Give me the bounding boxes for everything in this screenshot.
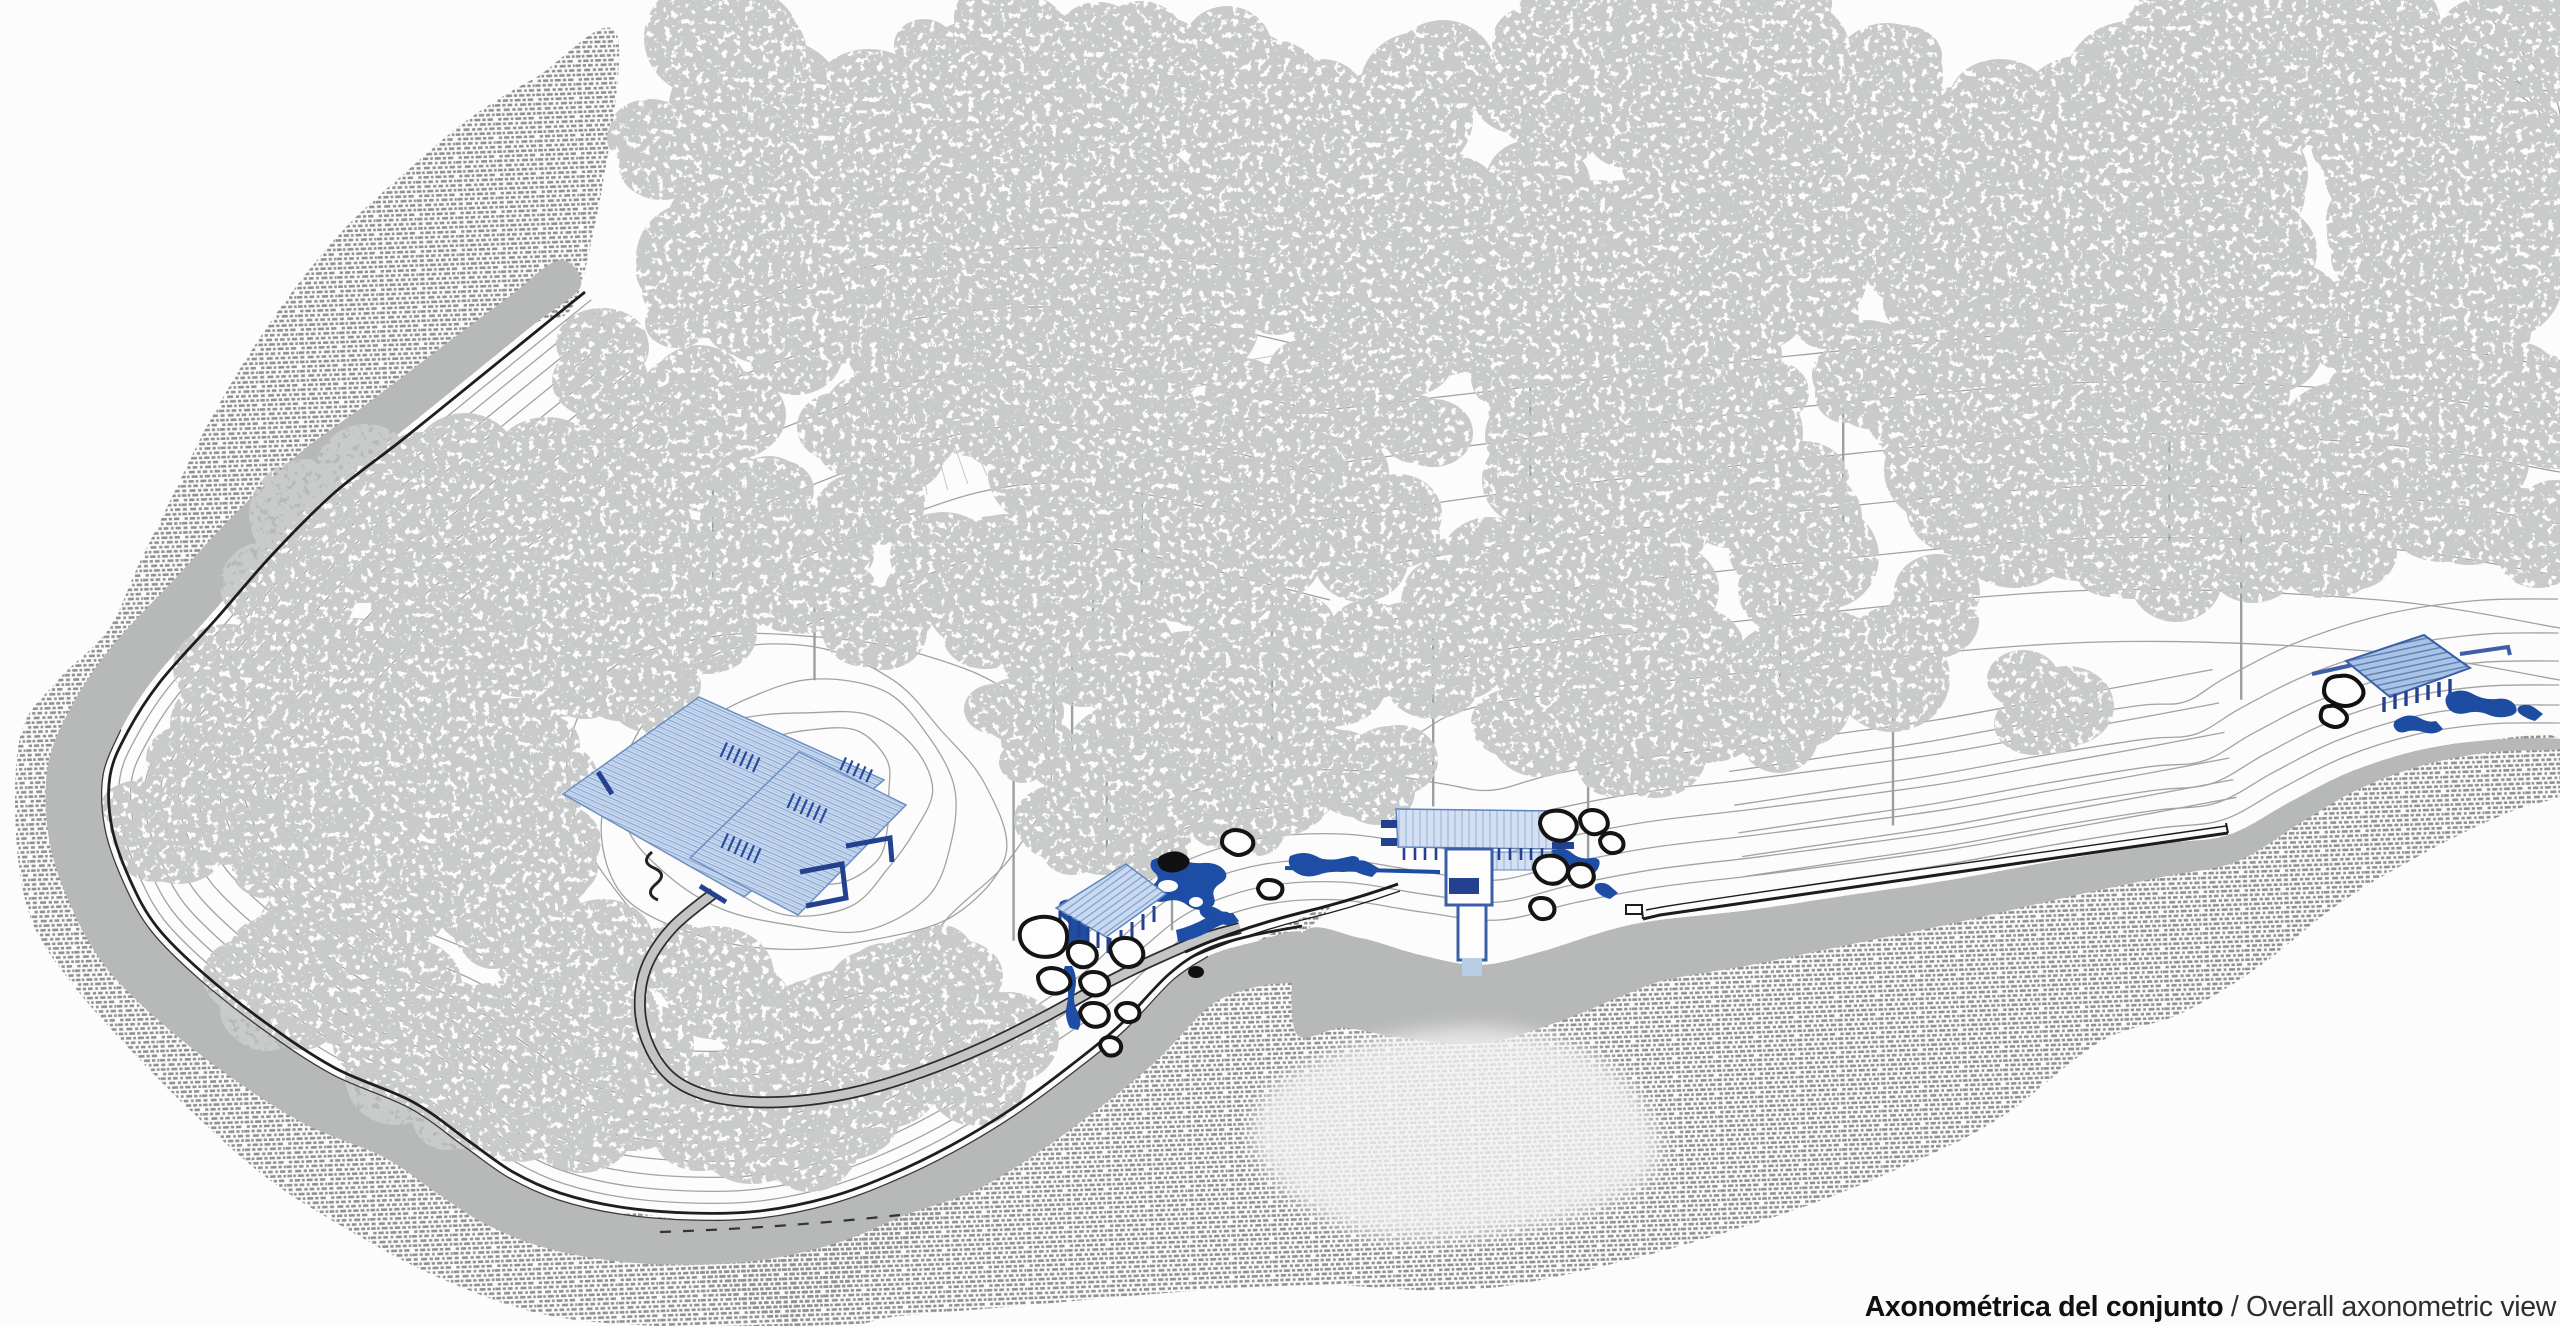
svg-text:Axonométrica del conjunto / Ov: Axonométrica del conjunto / Overall axon… [1865, 1291, 2557, 1323]
